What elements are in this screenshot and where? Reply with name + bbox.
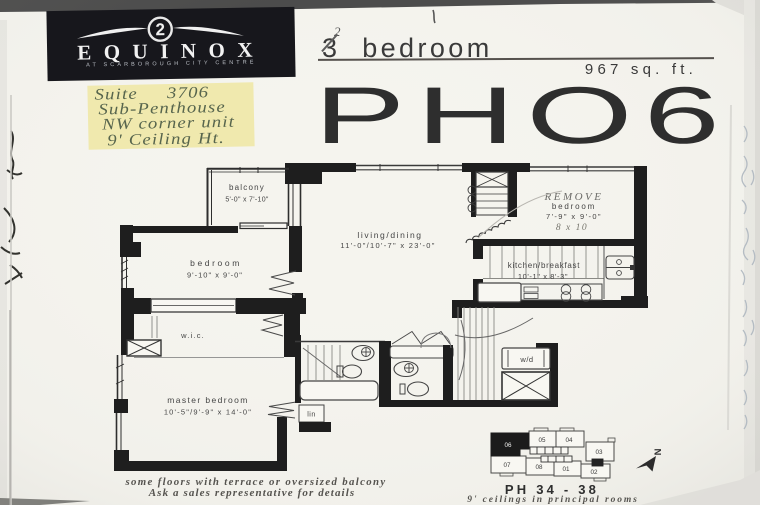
svg-text:05: 05 — [538, 437, 546, 444]
svg-text:master bedroom: master bedroom — [167, 395, 249, 405]
svg-text:kitchen/breakfast: kitchen/breakfast — [508, 261, 580, 270]
svg-text:10'-1" x 8'-3": 10'-1" x 8'-3" — [518, 272, 568, 281]
svg-text:Ask a sales representative for: Ask a sales representative for details — [148, 487, 355, 499]
svg-text:08: 08 — [535, 464, 543, 471]
svg-text:8 x 10: 8 x 10 — [556, 223, 588, 233]
svg-text:9' ceilings in principal rooms: 9' ceilings in principal rooms — [467, 495, 639, 505]
svg-text:07: 07 — [503, 462, 511, 469]
svg-text:04: 04 — [565, 437, 573, 444]
svg-text:w/d: w/d — [519, 355, 533, 364]
svg-text:01: 01 — [562, 466, 570, 473]
svg-text:w.i.c.: w.i.c. — [180, 331, 205, 340]
svg-text:5'-0" x 7'-10": 5'-0" x 7'-10" — [225, 197, 269, 204]
svg-text:N: N — [652, 449, 663, 456]
svg-text:7'-9" x 9'-0": 7'-9" x 9'-0" — [546, 212, 602, 221]
svg-text:03: 03 — [595, 449, 603, 456]
svg-text:10'-5"/9'-9" x 14'-0": 10'-5"/9'-9" x 14'-0" — [164, 408, 252, 417]
svg-text:lin: lin — [307, 412, 316, 419]
svg-text:11'-0"/10'-7" x 23'-0": 11'-0"/10'-7" x 23'-0" — [340, 241, 435, 250]
svg-text:9'-10" x 9'-0": 9'-10" x 9'-0" — [187, 271, 243, 280]
svg-text:bedroom: bedroom — [190, 258, 242, 268]
svg-text:02: 02 — [590, 469, 598, 476]
svg-text:06: 06 — [504, 442, 512, 449]
svg-text:bedroom: bedroom — [552, 202, 596, 211]
svg-text:living/dining: living/dining — [357, 230, 422, 240]
svg-text:balcony: balcony — [229, 183, 265, 192]
